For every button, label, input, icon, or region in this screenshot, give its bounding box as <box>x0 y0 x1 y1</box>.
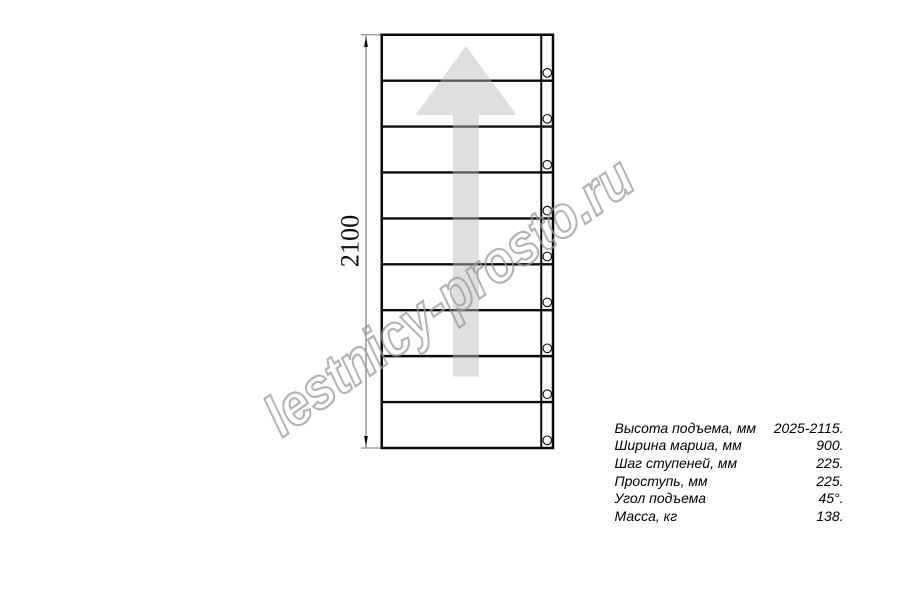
svg-text:2100: 2100 <box>336 215 365 268</box>
